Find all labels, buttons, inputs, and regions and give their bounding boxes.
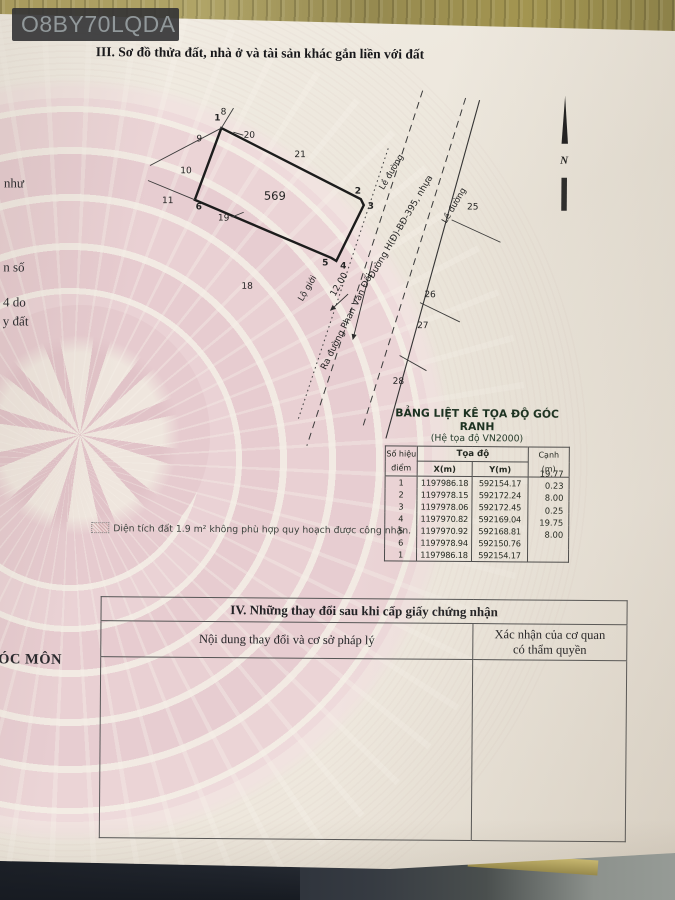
x-value: 1197986.18 xyxy=(417,476,472,489)
edge-length: 0.23 xyxy=(531,480,564,490)
watermark-code-badge: O8BY70LQDA xyxy=(12,8,179,41)
y-value: 592154.17 xyxy=(471,549,527,562)
confirm-line2: có thẩm quyền xyxy=(473,642,626,658)
header-point-line2: điểm xyxy=(385,461,417,476)
hatched-area-legend-icon xyxy=(91,522,109,533)
neighbor-plot-25: 25 xyxy=(467,203,479,212)
edge-length: 19.75 xyxy=(530,517,563,527)
edge-cell xyxy=(527,549,568,562)
y-value: 592154.17 xyxy=(472,477,528,490)
y-value: 592168.81 xyxy=(472,525,528,537)
section4-table: IV. Những thay đổi sau khi cấp giấy chứn… xyxy=(99,596,628,842)
tick-19 xyxy=(232,212,244,217)
north-symbol: N xyxy=(560,155,568,167)
edge-length: 8.00 xyxy=(530,492,563,502)
photo-of-land-certificate: III. Sơ đồ thửa đất, nhà ở và tài sản kh… xyxy=(0,0,675,900)
street-direction-arrowhead xyxy=(352,334,357,340)
certificate-page: III. Sơ đồ thửa đất, nhà ở và tài sản kh… xyxy=(0,0,675,900)
point-no: 6 xyxy=(385,536,417,548)
edge-length: 8.00 xyxy=(530,529,563,539)
neighbor-plot-9: 9 xyxy=(196,135,202,144)
neighbor-plot-26: 26 xyxy=(424,291,436,300)
header-y: Y(m) xyxy=(472,462,528,477)
plot-number-label: 569 xyxy=(264,191,286,203)
neighbor-plot-21: 21 xyxy=(294,151,306,160)
x-value: 1197978.94 xyxy=(417,537,472,549)
y-value: 592150.76 xyxy=(472,537,528,549)
neighbor-plot-8: 8 xyxy=(221,109,227,118)
y-value: 592172.24 xyxy=(472,489,528,501)
y-value: 592172.45 xyxy=(472,501,528,513)
y-value: 592169.04 xyxy=(472,513,528,525)
section4-col-confirm: Xác nhận của cơ quan có thẩm quyền xyxy=(473,624,627,661)
far-parcels-boundary-line xyxy=(386,99,480,439)
point-no: 5 xyxy=(385,524,417,536)
north-arrow-tail xyxy=(561,178,567,211)
point-no: 1 xyxy=(385,476,417,489)
neighbor-plot-19: 19 xyxy=(218,215,230,224)
neighbor-plot-11: 11 xyxy=(162,197,174,206)
x-value: 1197986.18 xyxy=(416,549,471,562)
confirm-line1: Xác nhận của cơ quan xyxy=(473,627,626,643)
edge-length: 19.77 xyxy=(531,468,564,478)
parcel-divider-26-27 xyxy=(420,303,460,322)
neighbor-plot-18: 18 xyxy=(241,283,253,292)
edge-length: 0.25 xyxy=(530,505,563,515)
coordinate-table-title: BẢNG LIỆT KÊ TỌA ĐỘ GÓC RANH xyxy=(385,406,569,433)
x-value: 1197970.82 xyxy=(417,513,472,525)
page-content: III. Sơ đồ thửa đất, nhà ở và tài sản kh… xyxy=(0,0,675,900)
header-point-line1: Số hiệu xyxy=(385,446,417,461)
section4-block: IV. Những thay đổi sau khi cấp giấy chứn… xyxy=(99,596,627,842)
vertex-label-5: 5 xyxy=(322,259,328,268)
vertex-label-6: 6 xyxy=(196,203,202,212)
parcel-divider-27-28 xyxy=(399,355,426,370)
section4-col-content: Nội dung thay đổi và cơ sở pháp lý xyxy=(101,621,473,660)
point-no: 1 xyxy=(384,548,416,561)
north-arrow-needle xyxy=(562,96,569,144)
point-no: 4 xyxy=(385,512,417,524)
parcel-divider-25-26 xyxy=(451,220,500,242)
header-coords: Tọa độ xyxy=(417,446,528,462)
coordinate-table: Số hiệu Tọa độ Cạnh điểm X(m) Y(m) (m) 1… xyxy=(384,445,570,562)
neighbor-plot-28: 28 xyxy=(393,378,405,387)
area-note: Diện tích đất 1.9 m² không phù hợp quy h… xyxy=(113,523,413,536)
section4-confirm-cell xyxy=(471,660,626,842)
x-value: 1197970.92 xyxy=(417,525,472,537)
coord-row: 11197986.18592154.17 xyxy=(384,548,568,562)
vertex-label-2: 2 xyxy=(355,188,361,197)
neighbor-plot-27: 27 xyxy=(417,322,429,331)
point-no: 3 xyxy=(385,500,417,512)
header-edge-line1: Cạnh xyxy=(528,447,569,462)
point-no: 2 xyxy=(385,488,417,500)
section4-content-cell xyxy=(99,657,472,841)
neighbor-plot-10: 10 xyxy=(180,167,192,176)
coordinate-table-subtitle: (Hệ tọa độ VN2000) xyxy=(385,432,569,445)
x-value: 1197978.15 xyxy=(417,489,472,501)
header-x: X(m) xyxy=(417,461,472,476)
x-value: 1197978.06 xyxy=(417,501,472,513)
neighbor-plot-20: 20 xyxy=(244,132,256,141)
vertex-label-3: 3 xyxy=(368,203,374,212)
